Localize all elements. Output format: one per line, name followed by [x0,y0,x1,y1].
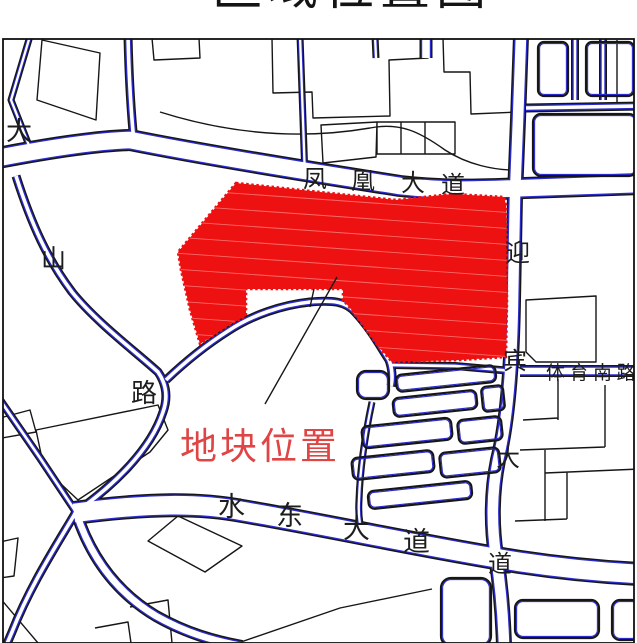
road [526,106,637,108]
parcel-outline [515,379,637,521]
blue-parcel [540,44,567,95]
parcel-outline [152,38,200,60]
leader-line [265,277,337,404]
page-title: 区域位置图 [212,0,637,14]
parcel-outline [272,38,428,118]
blue-parcel [394,391,476,415]
road [0,397,76,512]
roads-layer [0,36,637,643]
blue-parcel [443,580,490,643]
blue-parcel [517,602,598,637]
blue-parcel [586,42,634,96]
blue-parcel [515,600,599,638]
west-road-char: 山 [41,245,66,273]
parcel-outline [148,516,242,572]
blue-parcel [459,418,502,443]
fenghuang-char: 凰 [351,169,375,195]
yingbin-char: 迎 [506,240,530,267]
west-road-char: 大 [6,117,32,146]
tiyunan-label: 体育南路 [546,362,637,384]
plot-location-label: 地块位置 [180,426,340,468]
blue-parcel [367,481,472,510]
blue-parcel [533,114,637,176]
parcel-outline [443,38,519,114]
west-road-char: 路 [131,379,157,408]
yingbin-char: 道 [488,551,512,578]
blue-parcel [363,419,451,447]
map-canvas: 凤 凰 大 道 迎 宾 大 道 体育南路 水 东 大 道 大 山 路 地块位置 [0,0,637,643]
blue-parcel [535,116,636,175]
fenghuang-char: 道 [441,172,465,199]
fenghuang-char: 大 [401,170,425,197]
shuidong-char: 道 [403,527,430,557]
blue-parcel [392,390,478,418]
parcel-outline [526,296,596,362]
blue-parcel [588,44,633,95]
shuidong-char: 水 [218,492,245,522]
fenghuang-char: 凤 [303,167,327,193]
blue-parcel [357,371,389,399]
blue-parcel [538,42,568,96]
blue-parcel [359,373,388,398]
map-geometry: 凤 凰 大 道 迎 宾 大 道 体育南路 水 东 大 道 大 山 路 地块位置 [0,36,637,643]
shuidong-char: 东 [276,501,303,531]
shuidong-char: 大 [343,514,370,544]
page: { "title": { "text": "区域位置图" }, "map": {… [0,0,637,643]
yingbin-char: 宾 [503,348,527,375]
blue-parcel [361,417,453,448]
yingbin-char: 大 [496,445,520,472]
blue-parcel [441,578,491,643]
parcel-outline [37,40,100,120]
